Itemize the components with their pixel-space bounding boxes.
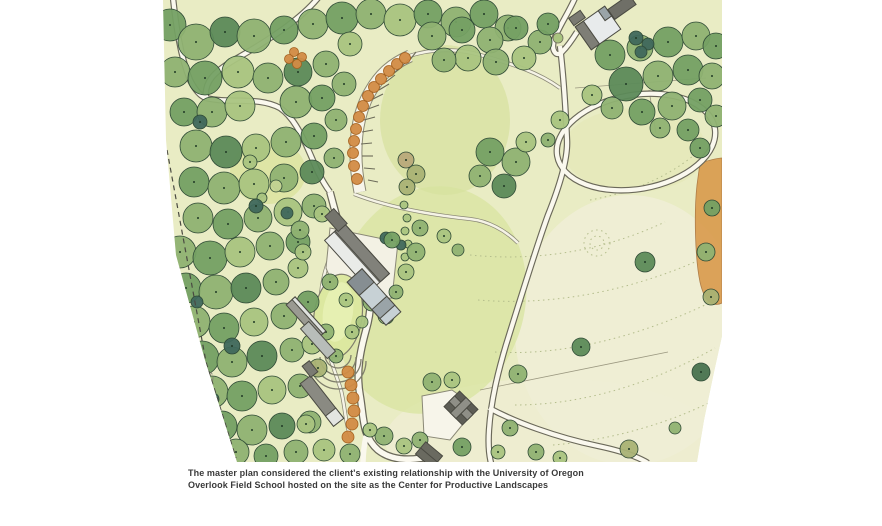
caption-line-2: Overlook Field School hosted on the site… <box>188 480 608 492</box>
caption: The master plan considered the client's … <box>188 468 608 491</box>
master-plan-illustration <box>0 0 882 526</box>
caption-line-1: The master plan considered the client's … <box>188 468 608 480</box>
page: The master plan considered the client's … <box>0 0 882 526</box>
